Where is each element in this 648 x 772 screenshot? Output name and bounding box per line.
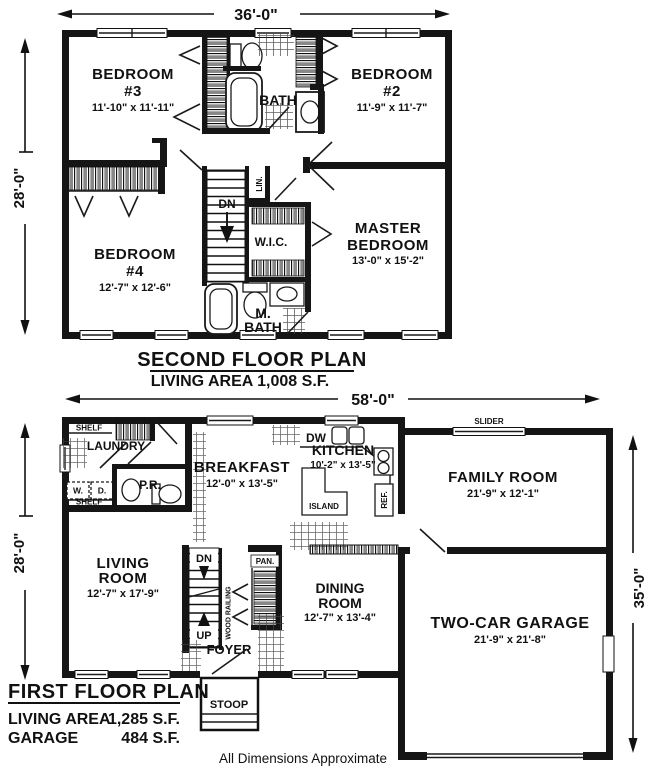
mbath-toilet-tank (243, 283, 267, 292)
kitchen-label: KITCHEN (312, 442, 374, 458)
slider-label: SLIDER (474, 417, 504, 426)
wic-rod-hatch (252, 208, 304, 224)
dining-room: DINING ROOM 12'-7" x 13'-4" (304, 580, 376, 624)
breakfast-label: BREAKFAST (194, 459, 290, 476)
garage-entry-opening (410, 546, 447, 555)
second-floor-subtitle: LIVING AREA 1,008 S.F. (151, 373, 329, 390)
mbath-tile-floor (283, 308, 305, 334)
garage-dims: 21'-9" x 21'-8" (474, 634, 546, 646)
bedroom3-closet-hatch (207, 37, 227, 129)
bedroom4-closet (68, 166, 165, 216)
master-dims: 13'-0" x 15'-2" (352, 255, 424, 267)
hall-door (180, 150, 202, 170)
breakfast-room: BREAKFAST 12'-0" x 13'-5" (193, 425, 300, 542)
foyer-tile-floor (258, 614, 284, 671)
bedroom2-label: BEDROOM (351, 66, 433, 83)
garage-side-door (603, 636, 614, 672)
first-floor-title: FIRST FLOOR PLAN (8, 681, 209, 703)
family-room-label: FAMILY ROOM (448, 469, 558, 486)
bedroom2-number: #2 (383, 83, 401, 100)
dim-35-0: 35'-0" (631, 568, 648, 609)
second-floor-height-dimension: 28'-0" (11, 38, 33, 335)
washer-label: W. (73, 486, 83, 496)
mbath-label-2: BATH (244, 319, 282, 335)
wic-label: W.I.C. (255, 235, 288, 249)
island-label: ISLAND (309, 502, 339, 511)
laundry-label: LAUNDRY (87, 439, 145, 453)
ref-label: REF. (380, 491, 389, 508)
laundry-tile-floor (63, 438, 87, 468)
bedroom2-closet-hatch (296, 37, 316, 87)
range-burner (378, 463, 389, 474)
bath-tile-floor (258, 34, 294, 56)
master-bath: M. BATH (205, 282, 311, 335)
bedroom3-label: BEDROOM (92, 66, 174, 83)
master-opening-mark (312, 222, 331, 246)
arrowhead-left (57, 10, 72, 19)
dimensions-disclaimer: All Dimensions Approximate (219, 751, 387, 766)
shelf-top-label: SHELF (76, 424, 102, 433)
dining-label-2: ROOM (318, 595, 362, 611)
bath-sink (301, 101, 319, 123)
garage-area-value: 484 S.F. (121, 730, 180, 747)
shelf-bottom-label: SHELF (76, 498, 102, 507)
second-floor-title: SECOND FLOOR PLAN (137, 349, 367, 371)
dn-label: DN (218, 197, 235, 211)
wic-door (275, 178, 296, 200)
bedroom3-dims: 11'-10" x 11'-11" (92, 102, 174, 114)
bath-label: BATH (259, 92, 297, 108)
bifold-door-mark (120, 196, 138, 216)
mbath-sink (277, 287, 297, 301)
bifold-door-mark (75, 196, 93, 216)
garage: TWO-CAR GARAGE 21'-9" x 21'-8" (431, 615, 590, 646)
first-floor-stairs: DN UP WOOD RAILING (182, 545, 233, 653)
dn-label-first: DN (196, 553, 212, 565)
master-label-2: BEDROOM (347, 237, 429, 254)
garage-area-label: GARAGE (8, 730, 79, 747)
toilet-tank (230, 44, 241, 68)
dim-28-0-second: 28'-0" (11, 168, 28, 209)
pr-sink (122, 479, 140, 501)
family-room: SLIDER FAMILY ROOM 21'-9" x 12'-1" (420, 417, 558, 552)
floor-plan-page: 36'-0" 28'-0" (0, 0, 648, 772)
stoop: STOOP (201, 678, 258, 730)
arrowhead-right (435, 10, 450, 19)
pr-label: P.R. (139, 478, 161, 492)
second-floor-width-dimension: 36'-0" (57, 7, 450, 24)
bedroom3-opening-mark (180, 46, 200, 64)
foyer-tile-floor (181, 640, 201, 671)
garage-label: TWO-CAR GARAGE (431, 615, 590, 632)
bedroom4-label: BEDROOM (94, 246, 176, 263)
first-floor-plan: 58'-0" 28'-0" 35'-0" (8, 392, 648, 761)
closet-opening-mark (233, 584, 248, 600)
second-floor-plan: 36'-0" 28'-0" (11, 7, 452, 390)
first-floor-right-dimension: 35'-0" (629, 435, 648, 753)
floor-plan-drawing: 36'-0" 28'-0" (0, 0, 648, 772)
living-room-label-2: ROOM (99, 570, 148, 587)
half-wall-hatch (310, 545, 398, 554)
kitchen: DW REF. ISLAND KITCHEN 10'-2" x 13'-5" (290, 427, 393, 550)
stairs-down: DN (202, 166, 249, 286)
kitchen-dims: 10'-2" x 13'-5" (310, 460, 376, 471)
dim-28-0-first: 28'-0" (11, 533, 28, 574)
pan-label: PAN. (256, 557, 275, 566)
breakfast-tile-floor (193, 432, 206, 542)
breakfast-dims: 12'-0" x 13'-5" (206, 478, 278, 490)
family-room-dims: 21'-9" x 12'-1" (467, 488, 539, 500)
living-area-label: LIVING AREA (8, 711, 111, 728)
dim-58-0: 58'-0" (351, 392, 394, 409)
laundry-closet-hatch (116, 419, 150, 440)
closet-opening-mark (233, 609, 248, 625)
bedroom4-number: #4 (126, 263, 144, 280)
stoop-label: STOOP (210, 699, 248, 711)
first-floor-width-dimension: 58'-0" (65, 392, 600, 409)
bath: BATH (202, 30, 324, 134)
dining-label-1: DINING (316, 580, 365, 596)
bedroom3-number: #3 (124, 83, 142, 100)
lin-label: LIN. (255, 176, 264, 191)
dryer-label: D. (98, 486, 107, 496)
dim-36-0: 36'-0" (234, 7, 277, 24)
wic-rod-hatch (252, 260, 304, 276)
pr-toilet-bowl (159, 485, 181, 503)
living-room: LIVING ROOM 12'-7" x 17'-9" (87, 555, 159, 600)
walk-in-closet: W.I.C. (249, 178, 311, 282)
second-floor-title-block: SECOND FLOOR PLAN LIVING AREA 1,008 S.F. (137, 349, 367, 390)
first-floor-left-dimension: 28'-0" (11, 423, 33, 680)
linen-closet: LIN. (249, 166, 270, 202)
bedroom4-dims: 12'-7" x 12'-6" (99, 282, 171, 294)
first-floor-title-block: FIRST FLOOR PLAN LIVING AREA 1,285 S.F. … (8, 681, 209, 747)
bedroom2-dims: 11'-9" x 11'-7" (357, 102, 428, 114)
dining-dims: 12'-7" x 13'-4" (304, 612, 376, 624)
living-room-dims: 12'-7" x 17'-9" (87, 588, 159, 600)
garage-door-opening (427, 751, 583, 761)
living-area-value: 1,285 S.F. (108, 711, 180, 728)
master-label-1: MASTER (355, 220, 421, 237)
bedroom3-opening-mark (174, 104, 200, 130)
wood-railing-label: WOOD RAILING (226, 586, 233, 640)
range-burner (378, 451, 389, 462)
